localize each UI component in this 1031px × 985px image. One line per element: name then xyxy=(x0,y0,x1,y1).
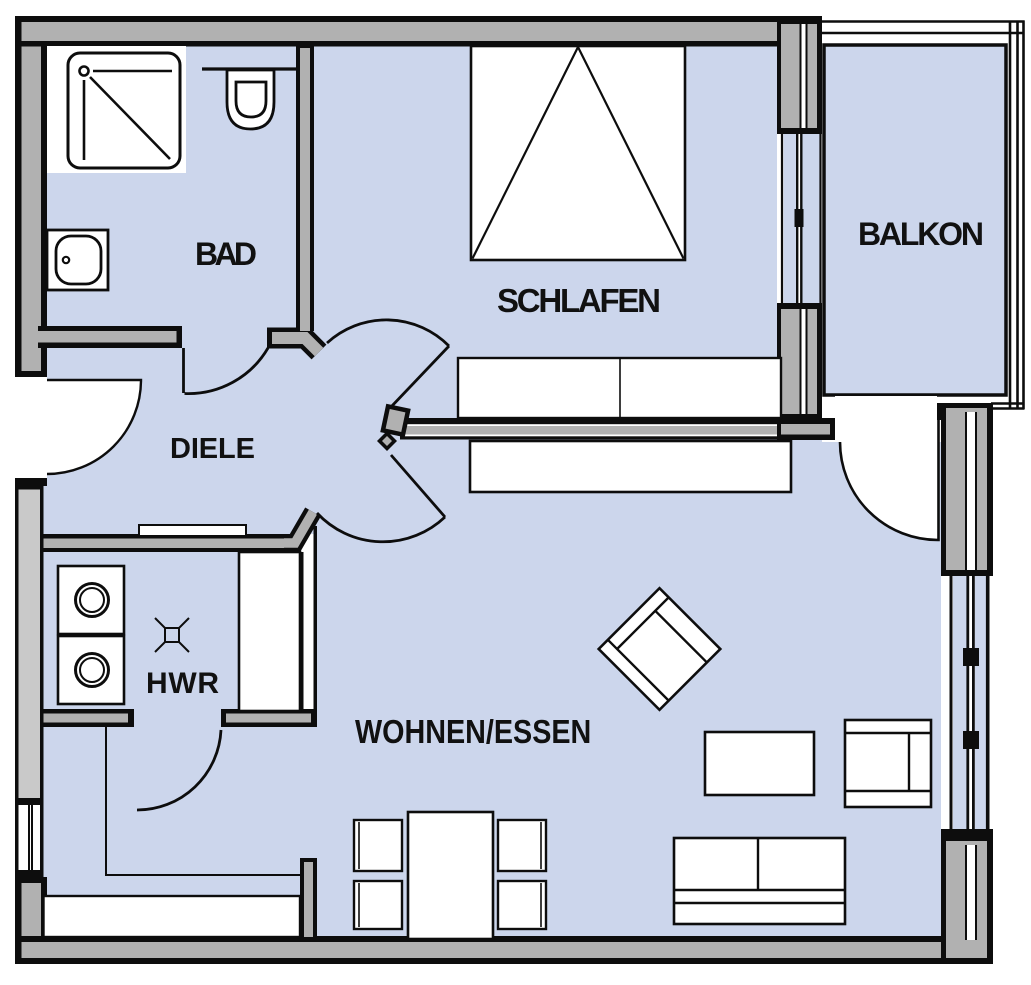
svg-text:DIELE: DIELE xyxy=(170,433,255,465)
svg-text:HWR: HWR xyxy=(146,667,219,700)
svg-text:SCHLAFEN: SCHLAFEN xyxy=(497,282,661,319)
svg-text:BAD: BAD xyxy=(195,236,257,272)
svg-text:BALKON: BALKON xyxy=(858,216,984,252)
svg-text:WOHNEN/ESSEN: WOHNEN/ESSEN xyxy=(355,713,591,751)
